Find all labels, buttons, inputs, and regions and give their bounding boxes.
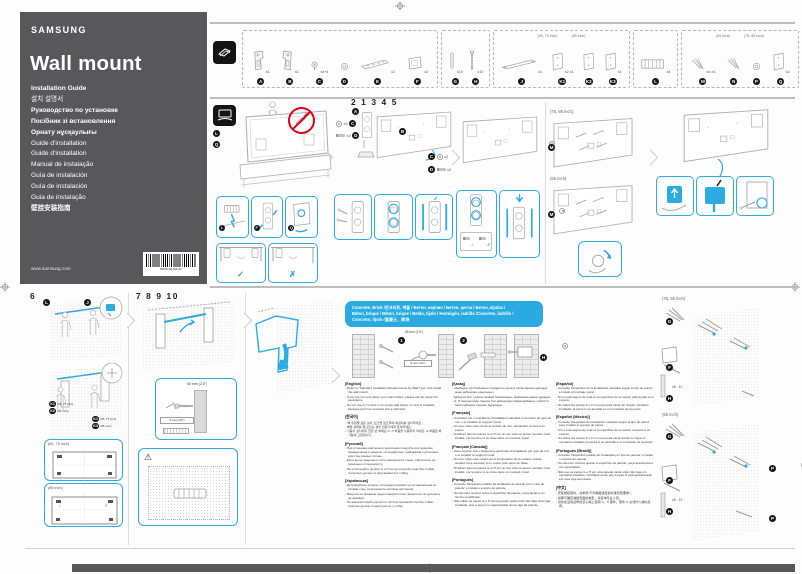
- part-screw-small-icon: [310, 58, 319, 76]
- drill-depth-panel: 65 mm (2.5") 5 mm (1/4"): [155, 378, 237, 440]
- cover-language-line: Guia de instalação: [31, 193, 118, 204]
- part-badge-H: H: [472, 78, 479, 85]
- part-item-P: P: [752, 39, 761, 85]
- callout-badge-f: F: [666, 364, 673, 371]
- screws-aside-sketch: [377, 340, 397, 374]
- page-title: Wall mount: [30, 52, 142, 76]
- warning-icon: ⚠: [144, 453, 152, 462]
- part-item-H: x10H: [468, 39, 483, 85]
- cover-language-list: Installation Guide설치 설명서Руководство по у…: [31, 84, 118, 215]
- ruler-glyph: [163, 428, 189, 434]
- check-mark: ✓: [237, 269, 244, 280]
- part-badge-L: L: [652, 78, 659, 85]
- row2-separator: [545, 102, 546, 284]
- callout-badge-p: P: [769, 465, 776, 472]
- barcode: BN68-11170A-02: [143, 252, 199, 276]
- comb-insert-sketch: [217, 197, 248, 237]
- callout-badge-k3: K3: [92, 423, 99, 429]
- part-item-A: x1A: [252, 39, 270, 85]
- part-badge-J: J: [518, 78, 525, 85]
- position-box-6575: (65, 75 inch): [44, 439, 123, 481]
- part-visual: x4 x4: [690, 39, 715, 76]
- size-label: (65, 75 inch): [57, 402, 73, 406]
- part-item-N: N: [726, 39, 741, 85]
- part-qty: x2 x1: [565, 70, 574, 76]
- callout-d-right: D x2: [428, 166, 451, 173]
- part-badge-E: E: [374, 78, 381, 85]
- part-qty: x1: [618, 70, 622, 76]
- part-qty: x2: [391, 70, 395, 76]
- parts-row: x4L: [637, 39, 674, 85]
- row3-separator-1: [128, 293, 129, 545]
- bottom-bar: [72, 564, 795, 572]
- cover-language-line: Manual de instalação: [31, 160, 118, 171]
- part-badge-Q: Q: [777, 78, 784, 85]
- callout-badge-f: F: [666, 477, 673, 484]
- language-bullet: Не используйте детали G и H на пустотело…: [345, 468, 444, 476]
- callout-c-right: C x2: [428, 153, 448, 160]
- language-bullet: N'utilisez pas les pièces G et H sur un …: [452, 433, 551, 441]
- part-item-K1: x2 x1K1: [551, 39, 574, 85]
- callout-badge-g: G: [666, 318, 673, 325]
- cover-language-line: Guía de instalación: [31, 182, 118, 193]
- part-qty: x4 x4: [706, 70, 715, 76]
- callout-badge-l: L: [213, 130, 220, 137]
- cover-language-line: Посібник зі встановлення: [31, 117, 118, 128]
- callout-badge-p: P: [769, 515, 776, 522]
- plate-callout: K1(65, 75 inch): [92, 416, 116, 422]
- part-plate-square-icon: [406, 56, 423, 76]
- cover-language-line: Installation Guide: [31, 84, 118, 95]
- part-item-M: x4 x4M: [690, 39, 715, 85]
- depth-label: 65 mm (2.5"): [187, 382, 207, 386]
- samsung-logo: SAMSUNG: [31, 25, 87, 35]
- language-bullet: No utilice las piezas G y H en una pared…: [556, 437, 655, 445]
- parts-group-4: x4L: [633, 30, 678, 88]
- language-column-3: [Español]Consulte 'Requisitos de la inst…: [556, 382, 655, 509]
- keep-clear-area: [148, 466, 230, 520]
- comb-part-sketch: [173, 488, 207, 499]
- hook-hang-sketch: [500, 191, 539, 257]
- language-bullet: 请勿在没有龙骨的空心墙上使用 G、H 部件。部件 G 必须拧入墙内龙骨。: [556, 501, 655, 509]
- size-label-7585: (75, 85 inch): [662, 296, 685, 301]
- callout-badge-a: A: [352, 108, 359, 115]
- cross-mark: ✗: [487, 243, 490, 247]
- parts-group-1: x1Ax1Bx4+4CDx2Ex2F: [242, 30, 438, 88]
- rule-top: [210, 22, 795, 24]
- part-screw-long-icon: [468, 50, 476, 76]
- part-visual: [752, 39, 761, 76]
- depth-label: 65 mm (2.5"): [405, 330, 423, 334]
- part-badge-N: N: [730, 78, 737, 85]
- wall-type-header-line: Concreto, tijolo /混凝土、砖块: [352, 317, 536, 323]
- tv-position-sketch: [45, 449, 124, 481]
- part-sheet-icon: [582, 52, 595, 76]
- cover-screw-sketch: [737, 177, 773, 215]
- parts-row: x1Jx2 x1K1K2x1K3: [497, 39, 626, 85]
- callout-badge-m: M: [548, 144, 555, 151]
- part-bracket-right-icon: [281, 50, 294, 76]
- qty-range-label: x8 - 10: [672, 498, 682, 502]
- parts-group-2: x10Gx10H: [441, 30, 490, 88]
- screw-icon: [336, 134, 345, 137]
- size-label-6575: (65, 75 inch): [48, 442, 69, 446]
- detail-cell: [334, 194, 372, 240]
- part-item-C: x4+4C: [310, 39, 328, 85]
- parts-icon: [217, 45, 232, 60]
- language-bullet: Если вы не уверены в типе поверхности ст…: [345, 459, 444, 467]
- language-bullet: Não utilize as peças G e H numa parede v…: [452, 500, 551, 508]
- detail-cell: L: [216, 196, 249, 238]
- detail-cell: [374, 194, 412, 240]
- part-badge-M: M: [699, 78, 706, 85]
- part-item-E: x2E: [360, 39, 395, 85]
- plate-callout-group-right: K1(65, 75 inch) K3(85 inch): [92, 416, 116, 429]
- hammer-anchor-sketch: [455, 346, 483, 374]
- part-sheet-icon: [604, 52, 617, 76]
- callout-badge-b: B: [399, 128, 406, 135]
- callout-badge-d: D: [428, 166, 435, 173]
- callout-d-left: x2 D: [336, 132, 359, 139]
- substep-2: 2: [460, 337, 467, 344]
- part-badge-A: A: [257, 78, 264, 85]
- drill-size-tag: 5 mm (1/4"): [404, 360, 432, 367]
- part-item-L: x4L: [640, 39, 670, 85]
- part-sheet-icon: [551, 52, 564, 76]
- plate-callout-group-left: K1(65, 75 inch) K2(85 inch): [49, 401, 73, 414]
- detail-panel-l-insert: L F Q: [216, 196, 318, 238]
- callout-badge-m: M: [548, 211, 555, 218]
- crop-mark-left: [0, 282, 10, 292]
- bracket-detail-panel: [334, 194, 453, 240]
- plate-screw-sketch: [508, 344, 534, 360]
- washer-icon: [562, 343, 568, 349]
- part-qty: x4+4: [320, 70, 328, 76]
- part-visual: x2: [772, 39, 790, 76]
- cross-mark: ✗: [289, 269, 296, 280]
- position-box-85: (85 inch) L R: [44, 483, 123, 527]
- part-visual: x1: [281, 39, 299, 76]
- washer-icon: [437, 154, 443, 160]
- anchor-scene-7585: [658, 303, 796, 409]
- language-bullet: Дотримуйтесь розділу «Стандартні вимоги …: [345, 484, 444, 492]
- correct-incorrect-panel: ✓ ✗: [216, 243, 318, 283]
- row3-separator-2: [245, 293, 246, 545]
- cable-sketch: [712, 158, 732, 178]
- part-screw-pack-icon: [690, 58, 705, 76]
- size-label-65: (65 inch): [550, 176, 566, 181]
- parts-row: x10Gx10H: [445, 39, 486, 85]
- detail-cell: F: [251, 196, 284, 238]
- part-qty: x10: [457, 70, 463, 76]
- part-item-Q: x2Q: [772, 39, 790, 85]
- callout-badge-k1: K1: [92, 416, 99, 422]
- part-qty: x4: [666, 70, 670, 76]
- language-bullet: G, H бөлшектерін тіреусіз бос қабырғада …: [452, 400, 551, 408]
- soft-surface-tile: [213, 105, 236, 126]
- size-label: (65, 75 inch): [100, 417, 116, 421]
- left-plate-letter: L: [59, 504, 61, 508]
- cover-language-line: Guía de instalación: [31, 171, 118, 182]
- callout-badge-q: Q: [213, 141, 220, 148]
- incorrect-cell: ✗: [268, 243, 318, 283]
- part-qty: x1: [266, 70, 270, 76]
- tv-back-sketch: [460, 110, 540, 172]
- cover-language-line: Руководство по установке: [31, 106, 118, 117]
- parts-group-5: (65 inch)(75, 85 inch)x4 x4MNPx2Q: [681, 30, 799, 88]
- part-item-B: x1B: [281, 39, 299, 85]
- bracket-align-sketch: [416, 195, 452, 239]
- washer-icon: [336, 121, 342, 127]
- website-url: www.samsung.com: [31, 266, 71, 271]
- part-washer-icon: [340, 58, 349, 76]
- tv-bottom-bad-sketch: [269, 244, 317, 267]
- language-column-1: [English]Refer to "Standard Installation…: [345, 382, 444, 509]
- detail-cell: [736, 176, 774, 216]
- part-rail-short-icon: [360, 58, 390, 76]
- tv-back-7585-sketch: [549, 116, 637, 172]
- bracket-screws-sketch: [335, 195, 371, 239]
- plate-callout: K3(85 inch): [92, 423, 116, 429]
- part-badge-F: F: [414, 78, 421, 85]
- part-anchor-icon: [448, 52, 456, 76]
- screw-icon: [479, 237, 486, 240]
- cover-detail-panel: [656, 176, 774, 216]
- language-bullet: Não use as peças G e H em uma parede vaz…: [556, 471, 655, 483]
- part-visual: x10: [468, 39, 483, 76]
- part-visual: [582, 39, 595, 76]
- callout-badge-j: J: [84, 299, 91, 306]
- language-bullet: 기둥이 설치되지 않은 빈 벽에는 G, H 부품을 사용하지 마세요. G 부…: [345, 430, 444, 438]
- brick-wall-tile: [438, 334, 454, 378]
- language-section-heading: [한국어]: [345, 415, 444, 420]
- part-badge-K1: K1: [558, 78, 566, 85]
- hook-circles-sketch: [457, 191, 496, 229]
- part-qty: x2: [424, 70, 428, 76]
- rule-parts-bottom: [210, 97, 795, 99]
- language-bullet: Do not use G, H parts in an empty wall w…: [345, 404, 444, 412]
- qty-label: x2: [347, 133, 351, 138]
- cover-language-line: Орнату нұсқаулығы: [31, 128, 118, 139]
- part-sheet-icon: [772, 52, 785, 76]
- screw-compare-box: ✓ ✗: [460, 232, 492, 251]
- part-visual: x2 x1: [551, 39, 574, 76]
- cover-language-line: 설치 설명서: [31, 95, 118, 106]
- language-bullet: No utilice las piezas G y H en una pared…: [556, 404, 655, 412]
- part-visual: x4: [640, 39, 670, 76]
- part-badge-C: C: [316, 78, 323, 85]
- manual-page: SAMSUNG Wall mount Installation Guide설치 …: [0, 0, 802, 574]
- bracket-holes-sketch: [375, 195, 411, 239]
- detail-cell: [656, 176, 694, 216]
- anchor-insert-sketch: [480, 350, 498, 360]
- press-cover-sketch: [657, 177, 693, 215]
- size-label: (85 inch): [100, 424, 111, 428]
- size-label-85: (85 inch): [48, 486, 63, 490]
- part-visual: x1: [604, 39, 622, 76]
- part-badge-P: P: [753, 78, 760, 85]
- plate-callout: K1(65, 75 inch): [49, 401, 73, 407]
- part-item-G: x10G: [448, 39, 463, 85]
- callout-badge-h: H: [540, 354, 547, 361]
- part-badge-K3: K3: [609, 78, 617, 85]
- right-plate-letter: R: [105, 504, 108, 508]
- part-bracket-left-icon: [252, 50, 265, 76]
- sheet-place-sketch: [286, 197, 317, 237]
- screw-into-wall-sketch: [164, 399, 196, 413]
- language-bullet: Consulte 'Requisitos padrão de instalaçã…: [452, 483, 551, 491]
- part-visual: x1: [252, 39, 270, 76]
- callout-badge-k2: K2: [49, 408, 56, 414]
- wall-rails-scene: [134, 298, 240, 372]
- detail-cell: [696, 176, 734, 216]
- part-bar-long-icon: [501, 58, 537, 76]
- tv-bottom-ok-sketch: [217, 244, 265, 267]
- parts-box-tile: [213, 41, 236, 64]
- part-qty: x1: [538, 70, 542, 76]
- screw-icon: [437, 168, 446, 171]
- parts-row: x1Ax1Bx4+4CDx2Ex2F: [246, 39, 434, 85]
- parts-row: x4 x4MNPx2Q: [685, 39, 795, 85]
- plate-callout: K2(85 inch): [49, 408, 73, 414]
- rule-content-end: [25, 548, 795, 549]
- part-badge-K2: K2: [585, 78, 593, 85]
- cover-slide-sketch: [697, 177, 733, 215]
- cover-language-line: Guide d'installation: [31, 139, 118, 150]
- part-washer-icon: [752, 58, 761, 76]
- qty-label: x2: [447, 167, 451, 172]
- language-bullet: Si vous n'êtes pas certain de la composi…: [452, 458, 551, 466]
- step-number-6: 6: [30, 291, 36, 301]
- language-bullet: Se não tiver certeza quanto à superfície…: [556, 462, 655, 470]
- screwdriver-icon: [290, 109, 313, 132]
- size-label: (85 inch): [57, 409, 68, 413]
- part-qty: x2: [786, 70, 790, 76]
- detail-cell: ✓ ✗: [456, 190, 497, 258]
- mount-on-wall-scene: [250, 296, 336, 396]
- hook-detail-panel: ✓ ✗: [456, 190, 540, 258]
- part-item-K2: K2: [582, 39, 595, 85]
- part-item-J: x1J: [501, 39, 542, 85]
- callout-badge-h: H: [666, 508, 673, 515]
- cover-panel: SAMSUNG Wall mount Installation Guide설치 …: [20, 12, 207, 284]
- tv-on-cushion-icon: [217, 109, 233, 122]
- language-bullet: Consulte 'Requisitos de la instalación e…: [556, 387, 655, 395]
- tv-position-sketch: [45, 494, 124, 527]
- language-column-2: [Қазақ]«Қабырға түрі бойынша стандартты …: [452, 382, 551, 508]
- part-visual: x2: [360, 39, 395, 76]
- bracket-to-tv-sketch: [334, 106, 456, 186]
- anchor-scene-65: [658, 419, 796, 543]
- callout-badge-c: C: [349, 120, 356, 127]
- crop-mark-top: [395, 1, 405, 11]
- check-mark: ✓: [471, 243, 474, 247]
- part-visual: [340, 39, 349, 76]
- no-tools-prohibition-icon: [288, 107, 315, 134]
- part-spacer-comb-icon: [640, 58, 665, 76]
- language-bullet: N'utilisez pas les pièces G et H sur un …: [452, 467, 551, 475]
- language-bullet: Refer to "Standard Installation Requirem…: [345, 387, 444, 395]
- drill-size-tag: 5 mm (1/4"): [160, 417, 194, 424]
- rule-row2-bottom: [210, 286, 795, 288]
- language-bullet: При установке настенного крепления следу…: [345, 447, 444, 459]
- size-label-7585: (75, 85 inch): [550, 109, 573, 114]
- callout-badge-k1: K1: [49, 401, 56, 407]
- parts-group-3: (65, 75 inch)(85 inch)x1Jx2 x1K1K2x1K3: [493, 30, 630, 88]
- hand-tighten-sketch: [579, 242, 621, 276]
- part-badge-D: D: [341, 78, 348, 85]
- screw-icon: [463, 237, 470, 240]
- qty-label: x2: [344, 121, 348, 126]
- qty-range-label: x8 - 10: [672, 385, 682, 389]
- barcode-number: BN68-11170A-02: [146, 267, 196, 272]
- callout-badge-c: C: [428, 153, 435, 160]
- language-bullet: Не використовуйте деталі G та H на порож…: [345, 501, 444, 509]
- language-section-heading: [Français]: [452, 411, 551, 415]
- part-item-D: D: [340, 39, 349, 85]
- bracket-attach-sketch: [252, 197, 283, 237]
- detail-cell: Q: [285, 196, 318, 238]
- substep-1: 1: [398, 337, 405, 344]
- part-visual: [726, 39, 741, 76]
- size-label-65: (65 inch): [662, 412, 678, 417]
- barcode-bars: [146, 254, 196, 267]
- cell-badge-f: F: [254, 225, 260, 231]
- part-badge-B: B: [286, 78, 293, 85]
- flow-chevron: [643, 150, 659, 166]
- part-badge-G: G: [452, 78, 459, 85]
- cover-language-line: 壁挂安装指南: [31, 204, 118, 215]
- part-item-K3: x1K3: [604, 39, 622, 85]
- part-visual: x1: [501, 39, 542, 76]
- part-qty: x10: [477, 70, 483, 76]
- callout-badge-h: H: [666, 395, 673, 402]
- keep-clear-warning-panel: ⚠: [138, 448, 238, 526]
- part-visual: x10: [448, 39, 463, 76]
- detail-cell: [415, 194, 453, 240]
- callout-c-left: x2 C: [336, 120, 356, 127]
- correct-cell: ✓: [216, 243, 266, 283]
- hang-rail-scene-1: [45, 296, 125, 362]
- brick-wall-tile: [352, 334, 375, 378]
- callout-badge-g: G: [666, 433, 673, 440]
- language-bullet: «Қабырға түрі бойынша стандартты орнату …: [452, 387, 551, 395]
- part-screw-pack-icon: [726, 58, 741, 76]
- part-item-F: x2F: [406, 39, 428, 85]
- part-qty: x1: [295, 70, 299, 76]
- language-section-heading: [Español (México)]: [556, 415, 655, 419]
- callout-badge-l: L: [43, 299, 50, 306]
- detail-cell: [499, 190, 540, 258]
- part-visual: x2: [406, 39, 428, 76]
- qty-label: x2: [444, 154, 448, 159]
- hand-tighten-panel: [578, 241, 622, 277]
- cover-language-line: Guide d'installation: [31, 149, 118, 160]
- part-visual: x4+4: [310, 39, 328, 76]
- wall-type-header: Concrete, Brick /콘크리트, 벽돌 / Бетон, кирпи…: [345, 301, 543, 327]
- callout-badge-d: D: [352, 132, 359, 139]
- cell-badge-l: L: [219, 225, 225, 231]
